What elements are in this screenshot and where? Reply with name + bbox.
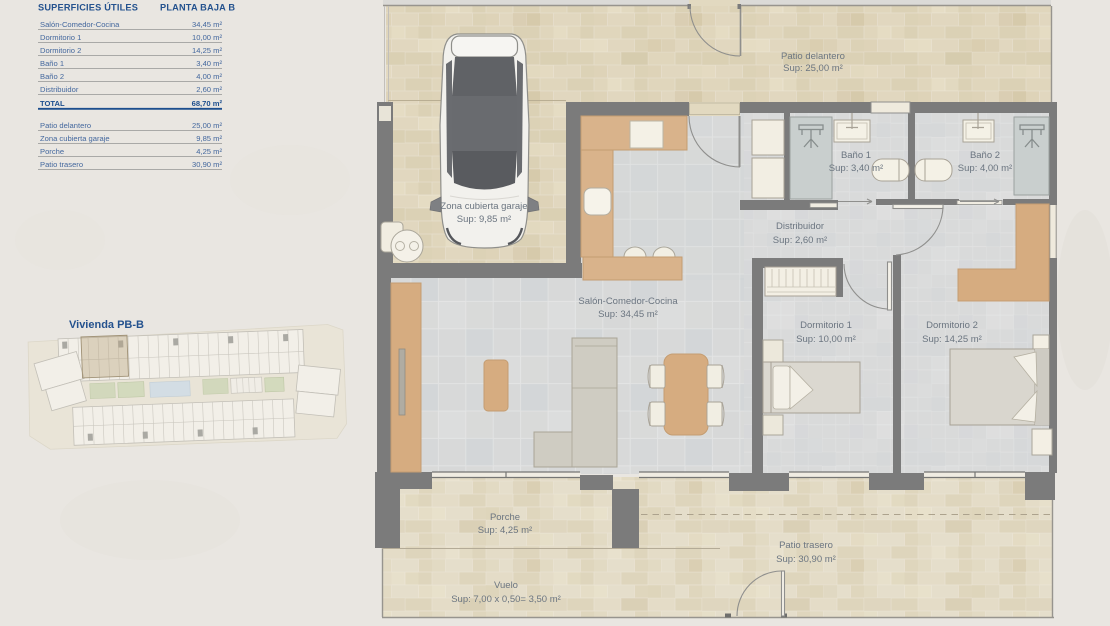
svg-text:Patio delantero: Patio delantero (40, 121, 91, 130)
svg-text:Patio trasero: Patio trasero (779, 540, 833, 551)
svg-text:3,40 m²: 3,40 m² (196, 59, 222, 68)
svg-text:9,85 m²: 9,85 m² (196, 134, 222, 143)
svg-text:4,25 m²: 4,25 m² (196, 147, 222, 156)
svg-text:10,00 m²: 10,00 m² (192, 33, 222, 42)
svg-text:Sup: 4,25 m²: Sup: 4,25 m² (478, 525, 532, 536)
svg-text:Baño 2: Baño 2 (40, 72, 64, 81)
svg-text:TOTAL: TOTAL (40, 99, 65, 108)
svg-text:Zona cubierta garaje: Zona cubierta garaje (40, 134, 110, 143)
svg-text:25,00 m²: 25,00 m² (192, 121, 222, 130)
svg-text:Sup: 4,00 m²: Sup: 4,00 m² (958, 163, 1012, 174)
svg-text:Baño 1: Baño 1 (841, 150, 871, 161)
svg-text:Sup: 10,00 m²: Sup: 10,00 m² (796, 334, 856, 345)
svg-text:Patio delantero: Patio delantero (781, 51, 845, 62)
svg-text:Baño 2: Baño 2 (970, 150, 1000, 161)
svg-text:Zona cubierta garaje: Zona cubierta garaje (440, 201, 527, 212)
svg-text:Salón-Comedor-Cocina: Salón-Comedor-Cocina (578, 296, 678, 307)
svg-text:Salón-Comedor-Cocina: Salón-Comedor-Cocina (40, 20, 120, 29)
svg-text:Sup: 3,40 m²: Sup: 3,40 m² (829, 163, 883, 174)
svg-text:Sup: 9,85 m²: Sup: 9,85 m² (457, 214, 511, 225)
svg-text:Sup: 14,25 m²: Sup: 14,25 m² (922, 334, 982, 345)
svg-text:Patio trasero: Patio trasero (40, 160, 83, 169)
svg-text:30,90 m²: 30,90 m² (192, 160, 222, 169)
svg-text:Porche: Porche (490, 512, 520, 523)
svg-text:Dormitorio 2: Dormitorio 2 (40, 46, 81, 55)
svg-text:34,45 m²: 34,45 m² (192, 20, 222, 29)
svg-text:Sup: 7,00 x 0,50= 3,50 m²: Sup: 7,00 x 0,50= 3,50 m² (451, 594, 561, 605)
svg-text:Sup: 2,60 m²: Sup: 2,60 m² (773, 235, 827, 246)
svg-text:Dormitorio 1: Dormitorio 1 (40, 33, 81, 42)
svg-text:Sup: 34,45 m²: Sup: 34,45 m² (598, 309, 658, 320)
svg-text:Sup: 25,00 m²: Sup: 25,00 m² (783, 63, 843, 74)
svg-text:Dormitorio 1: Dormitorio 1 (800, 320, 852, 331)
svg-text:Dormitorio 2: Dormitorio 2 (926, 320, 978, 331)
svg-text:Vuelo: Vuelo (494, 580, 518, 591)
svg-text:PLANTA BAJA B: PLANTA BAJA B (160, 3, 235, 13)
svg-text:Baño 1: Baño 1 (40, 59, 64, 68)
svg-text:4,00 m²: 4,00 m² (196, 72, 222, 81)
svg-text:2,60 m²: 2,60 m² (196, 85, 222, 94)
svg-text:68,70 m²: 68,70 m² (192, 99, 223, 108)
svg-text:Distribuidor: Distribuidor (776, 221, 824, 232)
svg-text:Sup: 30,90 m²: Sup: 30,90 m² (776, 554, 836, 565)
svg-text:Vivienda PB-B: Vivienda PB-B (69, 319, 144, 331)
svg-text:Distribuidor: Distribuidor (40, 85, 79, 94)
svg-text:Porche: Porche (40, 147, 64, 156)
svg-text:SUPERFICIES ÚTILES: SUPERFICIES ÚTILES (38, 2, 138, 13)
svg-text:14,25 m²: 14,25 m² (192, 46, 222, 55)
